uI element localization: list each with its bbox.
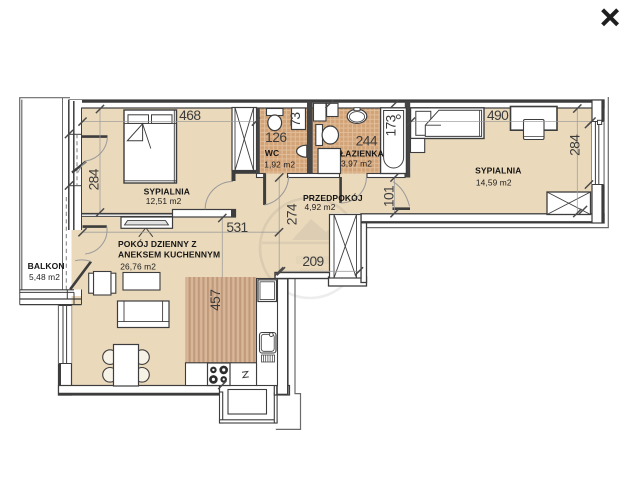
svg-text:531: 531	[226, 220, 247, 235]
svg-text:468: 468	[179, 108, 201, 123]
svg-text:3,97 m2: 3,97 m2	[341, 158, 372, 168]
svg-text:244: 244	[356, 134, 378, 149]
svg-text:173: 173	[383, 114, 398, 136]
svg-text:SYPIALNIA: SYPIALNIA	[475, 165, 521, 175]
svg-text:BALKON: BALKON	[28, 261, 65, 271]
svg-text:26,76 m2: 26,76 m2	[120, 261, 156, 271]
svg-text:ŁAZIENKA: ŁAZIENKA	[340, 148, 384, 158]
svg-text:457: 457	[208, 290, 223, 311]
svg-text:POKÓJ DZIENNY Z: POKÓJ DZIENNY Z	[118, 238, 197, 249]
svg-text:SYPIALNIA: SYPIALNIA	[144, 186, 190, 196]
svg-text:126: 126	[265, 130, 287, 145]
svg-text:5,48 m2: 5,48 m2	[29, 272, 60, 282]
svg-text:4,92 m2: 4,92 m2	[305, 202, 336, 212]
svg-text:274: 274	[284, 203, 299, 225]
svg-text:101: 101	[382, 186, 397, 207]
svg-text:ANEKSEM KUCHENNYM: ANEKSEM KUCHENNYM	[118, 249, 220, 259]
svg-text:490: 490	[487, 108, 509, 123]
svg-text:WC: WC	[265, 148, 279, 158]
svg-text:12,51 m2: 12,51 m2	[146, 196, 182, 206]
svg-text:1,92 m2: 1,92 m2	[264, 160, 295, 170]
svg-text:14,59 m2: 14,59 m2	[476, 178, 512, 188]
svg-text:284: 284	[567, 134, 582, 156]
svg-text:73: 73	[288, 112, 303, 127]
svg-text:284: 284	[87, 168, 102, 190]
svg-text:209: 209	[302, 254, 324, 269]
